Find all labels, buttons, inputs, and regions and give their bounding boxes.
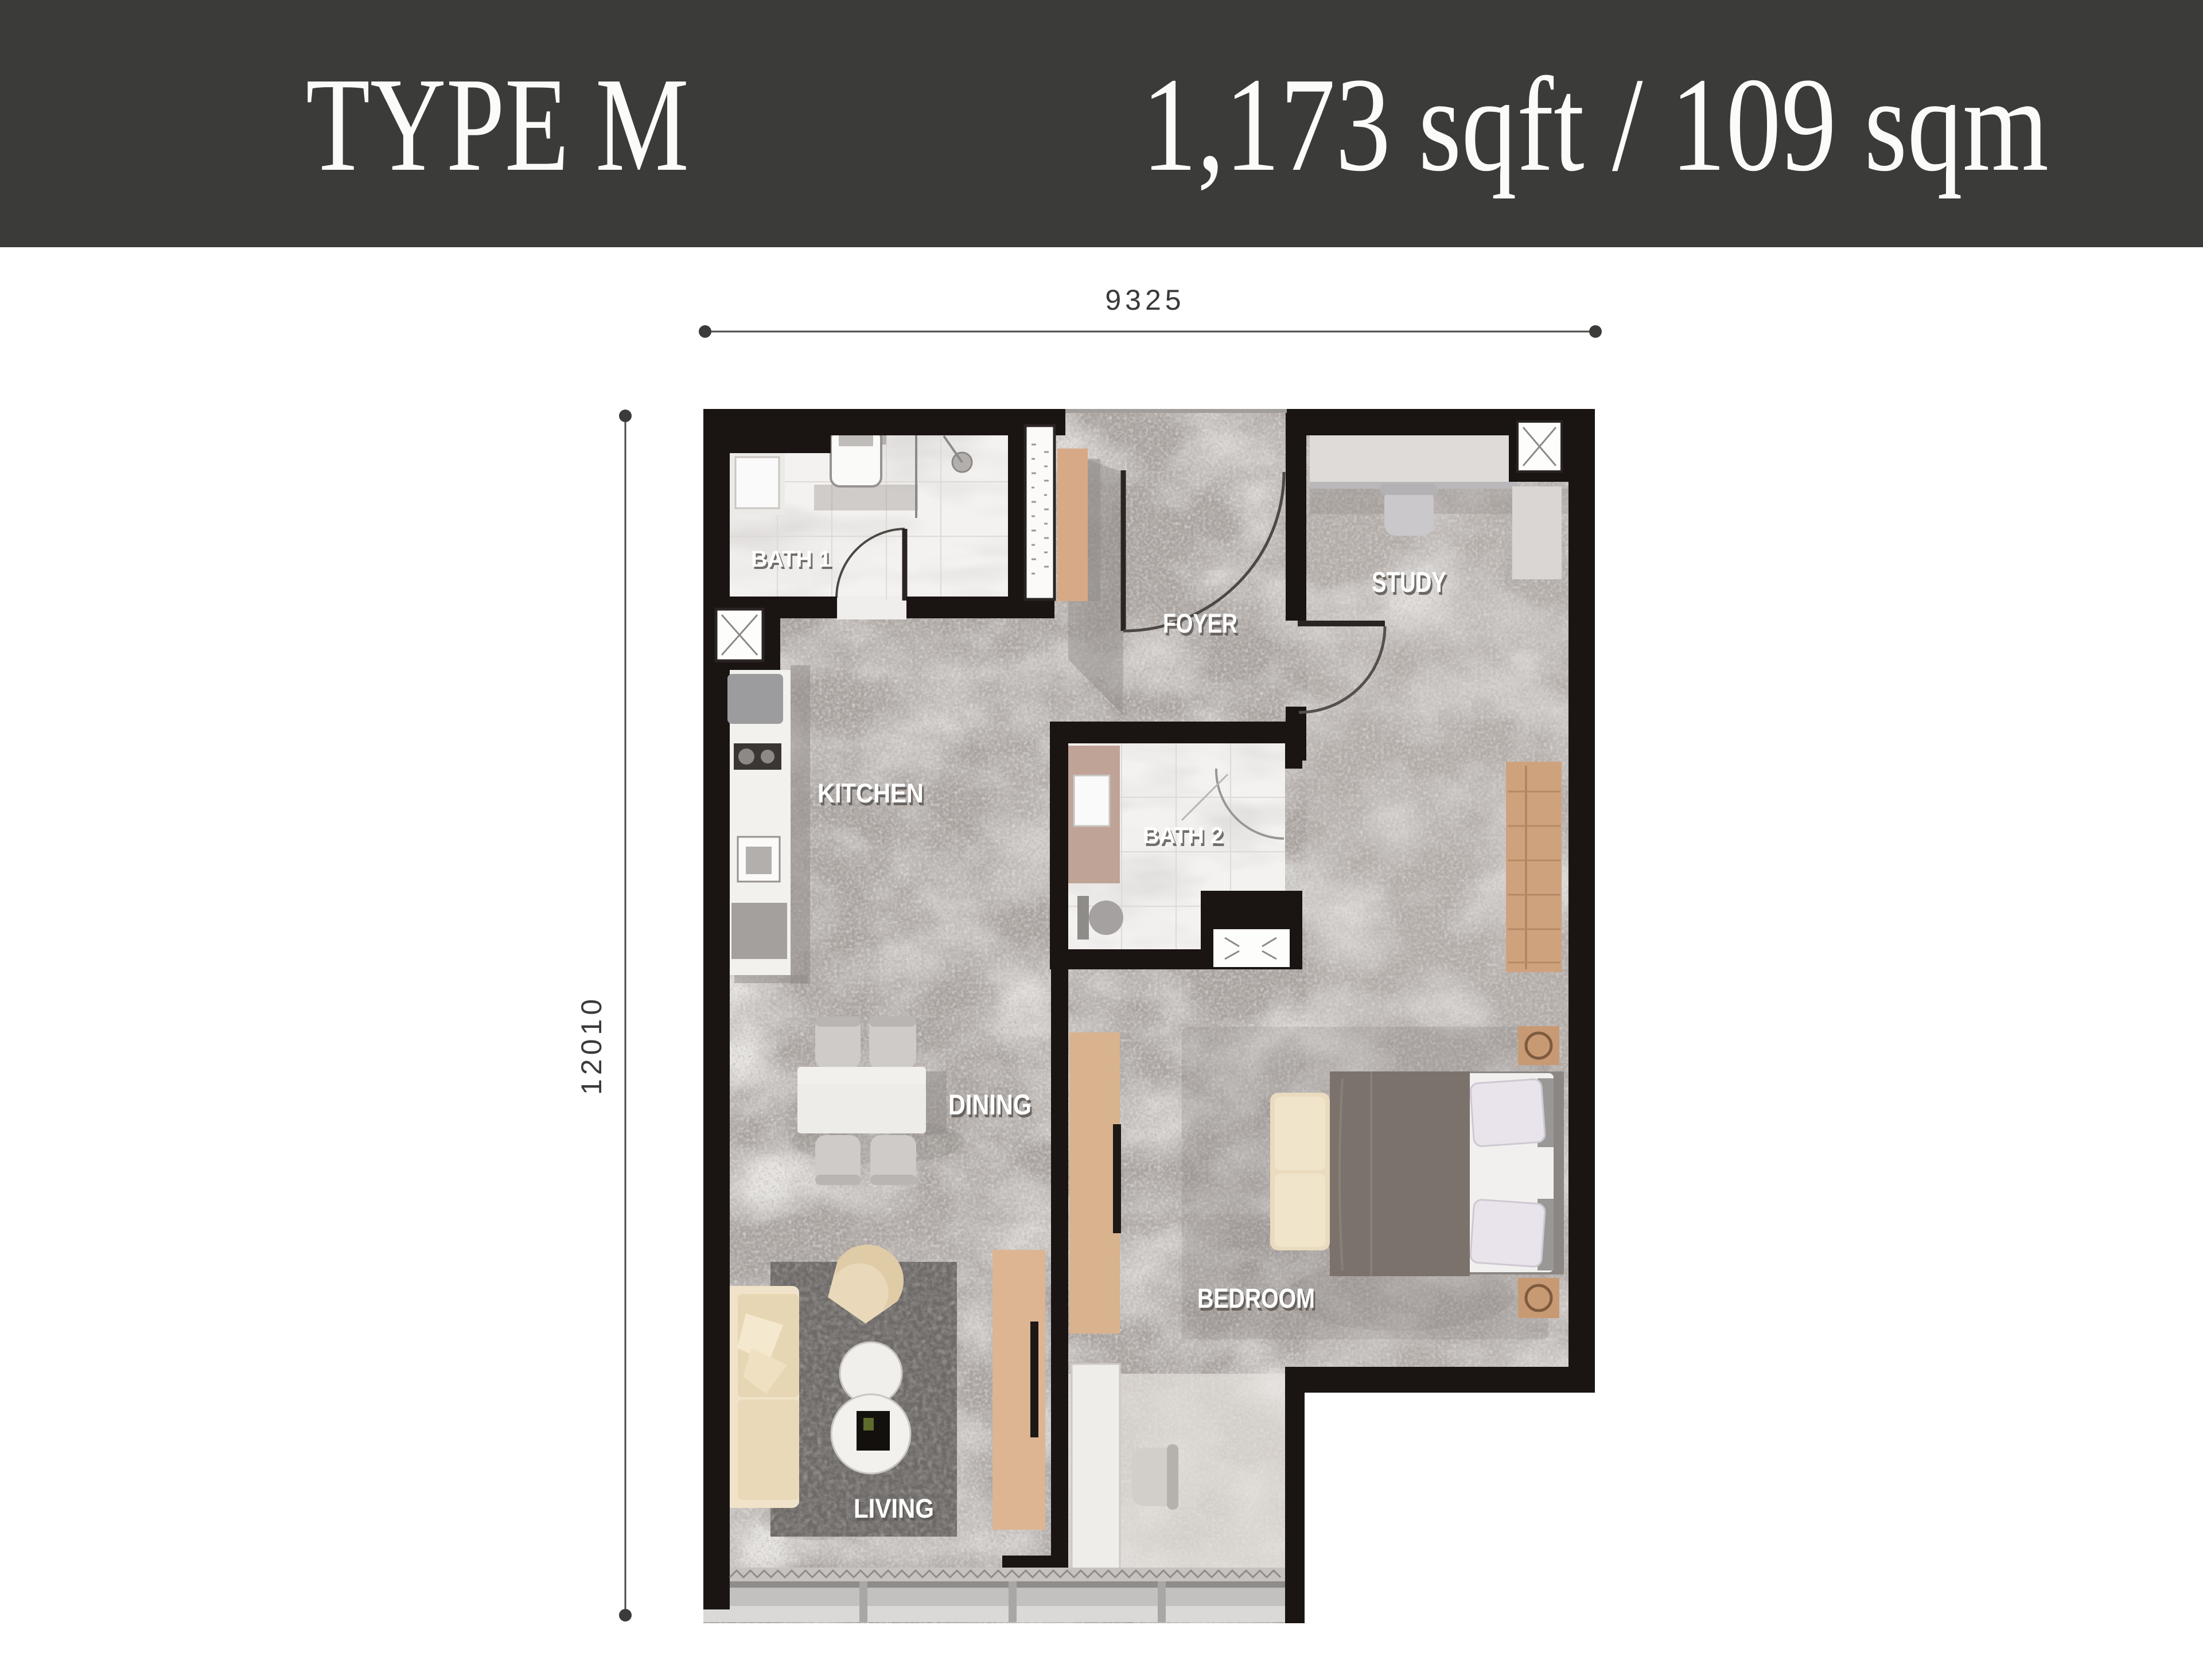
svg-text:BATH 2: BATH 2 (1143, 823, 1223, 848)
svg-text:TYPE M: TYPE M (306, 50, 689, 199)
svg-text:BATH 1: BATH 1 (751, 547, 831, 572)
svg-text:9325: 9325 (1105, 284, 1185, 316)
svg-text:DINING: DINING (948, 1089, 1032, 1121)
svg-text:KITCHEN: KITCHEN (818, 778, 924, 808)
svg-text:STUDY: STUDY (1372, 566, 1446, 598)
svg-text:BEDROOM: BEDROOM (1197, 1284, 1315, 1314)
svg-text:1,173 sqft / 109 sqm: 1,173 sqft / 109 sqm (1142, 50, 2049, 199)
svg-text:FOYER: FOYER (1163, 608, 1237, 638)
svg-text:12010: 12010 (575, 995, 608, 1095)
svg-text:LIVING: LIVING (854, 1493, 934, 1523)
